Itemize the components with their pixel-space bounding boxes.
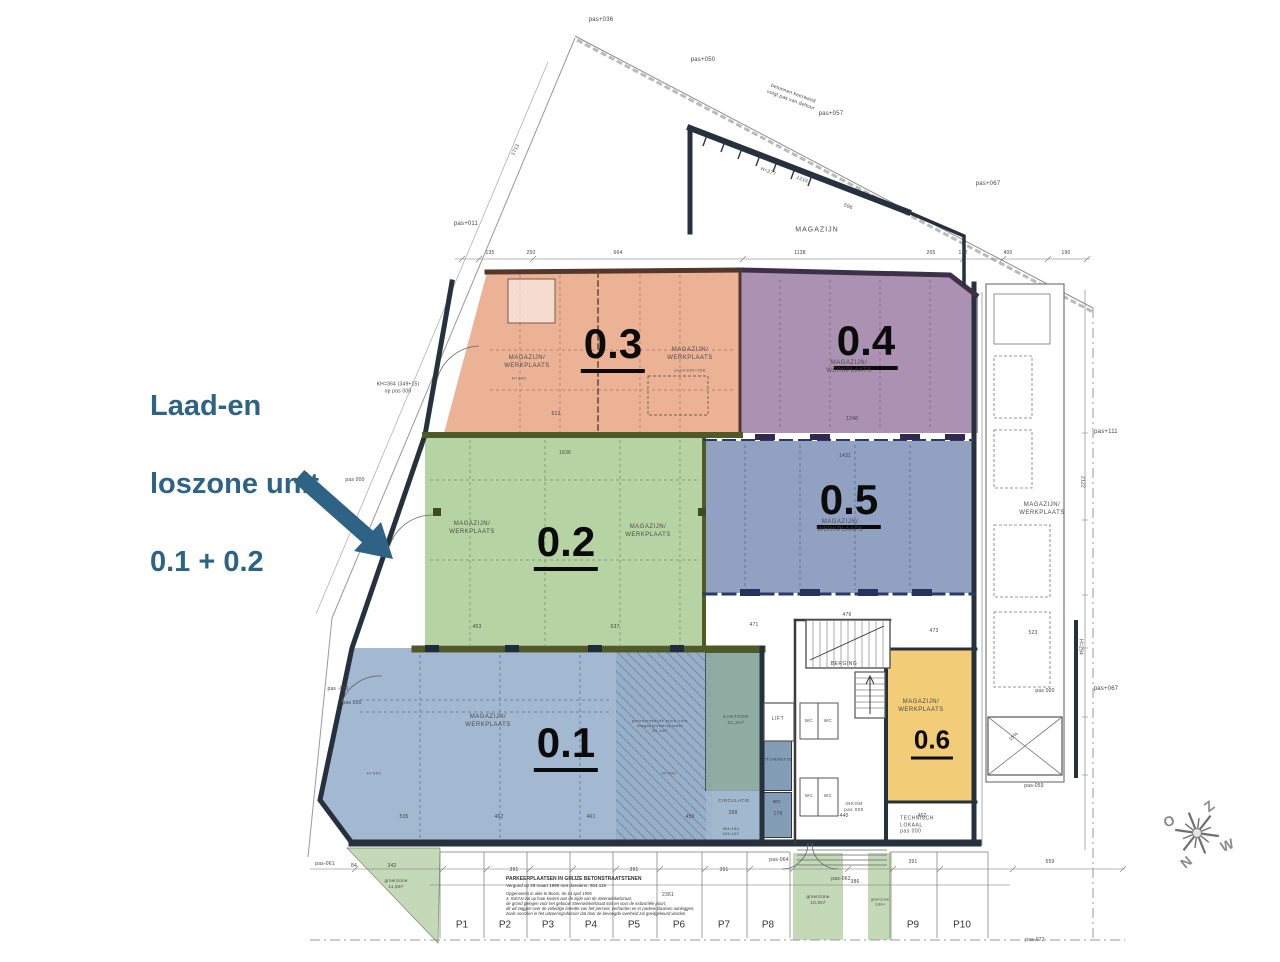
groenzone-label-strip1: groenzone 10,3m² — [806, 894, 829, 906]
dim-135: 135 — [486, 250, 495, 257]
site-pas-059: pas-059 — [1024, 783, 1043, 790]
room-magazijn-06: MAGAZIJN/ WERKPLAATS — [898, 699, 944, 715]
zone-label-0-3: 0.3 — [581, 320, 645, 368]
room-03b-plafond: plafondH=298 — [674, 367, 705, 372]
site-dim-1713: 1713 — [510, 143, 521, 157]
compass-letter-o: O — [1162, 812, 1177, 830]
room-magazijn-05: MAGAZIJN/ WERKPLAATS — [817, 519, 863, 535]
annotation-text: Laad-en loszone unit 0.1 + 0.2 — [150, 348, 319, 621]
compass-letter-n: N — [1177, 853, 1195, 872]
room-inkom: INKOM pas 000 — [844, 801, 864, 813]
room-berging: BERGING — [831, 661, 858, 668]
dim-612: 612 — [552, 411, 561, 418]
compass-letter-w: W — [1218, 835, 1236, 855]
room-circulatie: CIRCULATIE — [718, 798, 749, 804]
site-pas000-door: pas 000 — [342, 700, 361, 707]
room-magazijn-right-strip: MAGAZIJN/ WERKPLAATS — [1019, 502, 1065, 518]
site-keerwand-note: betonnen keerwand volgt pas van deltour — [766, 82, 818, 111]
dim-596: 596 — [843, 202, 854, 211]
annotation-line-2: loszone unit — [150, 465, 319, 504]
dim-459: 459 — [686, 814, 695, 821]
dim-265: 265 — [927, 250, 936, 257]
groenzone-label-triangle: groenzone 11,8m² — [384, 878, 407, 890]
kitchenette-fill — [763, 740, 791, 790]
room-lift: LIFT — [772, 716, 784, 723]
annotation-line-1: Laad-en — [150, 387, 319, 426]
dim-ramp-slope: 15% — [1008, 731, 1020, 743]
dim-473: 473 — [930, 628, 939, 635]
room-kantoor: KANTOOR 21,3m² — [723, 714, 749, 726]
parking-stall-p4: P4 — [585, 920, 597, 931]
room-magazijn-02a: MAGAZIJN/ WERKPLAATS — [449, 521, 495, 537]
dim-1138-top: 1138 — [794, 250, 806, 257]
site-pas036: pas+036 — [589, 17, 614, 25]
site-pas-064: pas-064 — [769, 857, 788, 864]
dim-440: 440 — [840, 813, 849, 820]
parking-stall-p9: P9 — [907, 920, 919, 931]
site-pas-062: pas-062 — [831, 876, 850, 883]
room-03a-height: H=300 — [512, 375, 526, 380]
room-wc-1: WC — [805, 718, 814, 724]
dim-250: 250 — [527, 250, 536, 257]
site-pas057: pas+057 — [819, 111, 844, 119]
annotation-line-3: 0.1 + 0.2 — [150, 543, 319, 582]
room-wc-4: WC — [824, 793, 833, 799]
site-pas-030: pas -030 — [327, 686, 348, 693]
site-pas-061: pas-061 — [315, 861, 334, 868]
dim-2122: 2122 — [1079, 476, 1086, 488]
room-wc-2: WC — [824, 718, 833, 724]
site-pas000-ramp: pas 000 — [1035, 688, 1054, 695]
compass-letter-z: Z — [1201, 797, 1218, 815]
zone-label-0-5: 0.5 — [817, 476, 881, 524]
parking-stall-p10: P10 — [953, 920, 971, 931]
room-wc-5: WC — [773, 799, 782, 805]
groenzone-label-strip2: groenzone 3,8m² — [871, 897, 889, 906]
dim-h294: H=294 — [1077, 639, 1084, 655]
parking-stall-p5: P5 — [628, 920, 640, 931]
parking-note-sub: Vergund op 28 maart 1995 met dossiernr. … — [506, 883, 606, 888]
dim-391-b: 391 — [630, 867, 639, 874]
dim-391-c: 391 — [720, 867, 729, 874]
dim-400: 400 — [1004, 250, 1013, 257]
room-magazijn-02b: MAGAZIJN/ WERKPLAATS — [625, 524, 671, 540]
room-01-height-hatch: H=300 — [662, 770, 676, 775]
floorplan-canvas: Laad-en loszone unit 0.1 + 0.2 0.3 0.4 0… — [0, 0, 1280, 962]
dim-462-a: 462 — [495, 814, 504, 821]
dim-190: 190 — [1062, 250, 1071, 257]
dim-84: 84 — [351, 863, 357, 870]
zone-label-0-1: 0.1 — [534, 719, 598, 767]
dim-453: 453 — [473, 624, 482, 631]
dim-664: 664 — [614, 250, 623, 257]
dim-559: 559 — [1046, 859, 1055, 866]
room-magazijn-03a: MAGAZIJN/ WERKPLAATS — [504, 355, 550, 371]
dim-523: 523 — [1029, 630, 1038, 637]
site-pas067-top: pas+067 — [976, 181, 1001, 189]
dim-471: 471 — [750, 622, 759, 629]
site-pas050: pas+050 — [691, 57, 716, 65]
zone-label-0-2: 0.2 — [534, 518, 598, 566]
site-pas111: pas+111 — [1094, 429, 1118, 437]
room-wc-3: WC — [805, 793, 814, 799]
dim-1431: 1431 — [839, 453, 851, 460]
dim-342: 342 — [388, 863, 397, 870]
site-pas000-left: pas 000 — [345, 477, 364, 484]
site-pas011: pas+011 — [454, 221, 478, 229]
room-magazijn-01: MAGAZIJN/ WERKPLAATS — [465, 714, 511, 730]
zone-label-0-6: 0.6 — [911, 725, 953, 756]
dim-179: 179 — [774, 811, 783, 818]
zone-label-0-4: 0.4 — [834, 317, 898, 365]
room-magazijn-04: MAGAZIJN/ WERKPLAATS — [826, 360, 872, 376]
parking-stall-p8: P8 — [762, 920, 774, 931]
dim-1215: 1215 — [795, 175, 808, 185]
dim-476: 476 — [843, 612, 852, 619]
parking-note-title: PARKEERPLAATSEN IN GRIJZE BETONSTRAATSTE… — [506, 876, 641, 882]
site-pas067-right: pas+067 — [1094, 686, 1119, 694]
dim-288: 288 — [729, 810, 738, 817]
parking-stall-p7: P7 — [718, 920, 730, 931]
dim-391-d: 391 — [909, 859, 918, 866]
dim-386: 386 — [851, 879, 860, 886]
parking-stall-p1: P1 — [456, 920, 468, 931]
room-kitchenette: KITCHENETTE — [762, 758, 792, 763]
site-kh364: KH=364 (349+15) op pas 000 — [377, 382, 420, 395]
dim-h277: H=277 — [759, 166, 776, 178]
parking-stall-p6: P6 — [673, 920, 685, 931]
dim-1636: 1636 — [559, 450, 571, 457]
dim-461: 461 — [587, 814, 596, 821]
dim-132: 132 — [959, 250, 968, 257]
dim-637: 637 — [611, 624, 620, 631]
room-01-reserved-note: gereserveerde zone voor magazijn/werkpla… — [632, 718, 688, 734]
parking-stall-p2: P2 — [499, 920, 511, 931]
parking-stall-p3: P3 — [542, 920, 554, 931]
room-magazijn-top: MAGAZIJN — [795, 225, 838, 234]
dim-391-a: 391 — [510, 867, 519, 874]
room-01-height-left: H=300 — [367, 770, 381, 775]
parking-note-body: Opgenomen in akte te Boom, de 14 april 1… — [506, 892, 694, 917]
room-magazijn-03b: MAGAZIJN/ WERKPLAATS — [667, 347, 713, 363]
site-pas-072: pas-072 — [1025, 937, 1044, 944]
zone-0-1-hatched-area — [616, 650, 712, 840]
dim-bh154: BH=154 DH=122 — [723, 826, 739, 836]
dim-535: 535 — [400, 814, 409, 821]
dim-462-b: 462 — [918, 813, 927, 820]
dim-1248: 1248 — [846, 416, 858, 423]
